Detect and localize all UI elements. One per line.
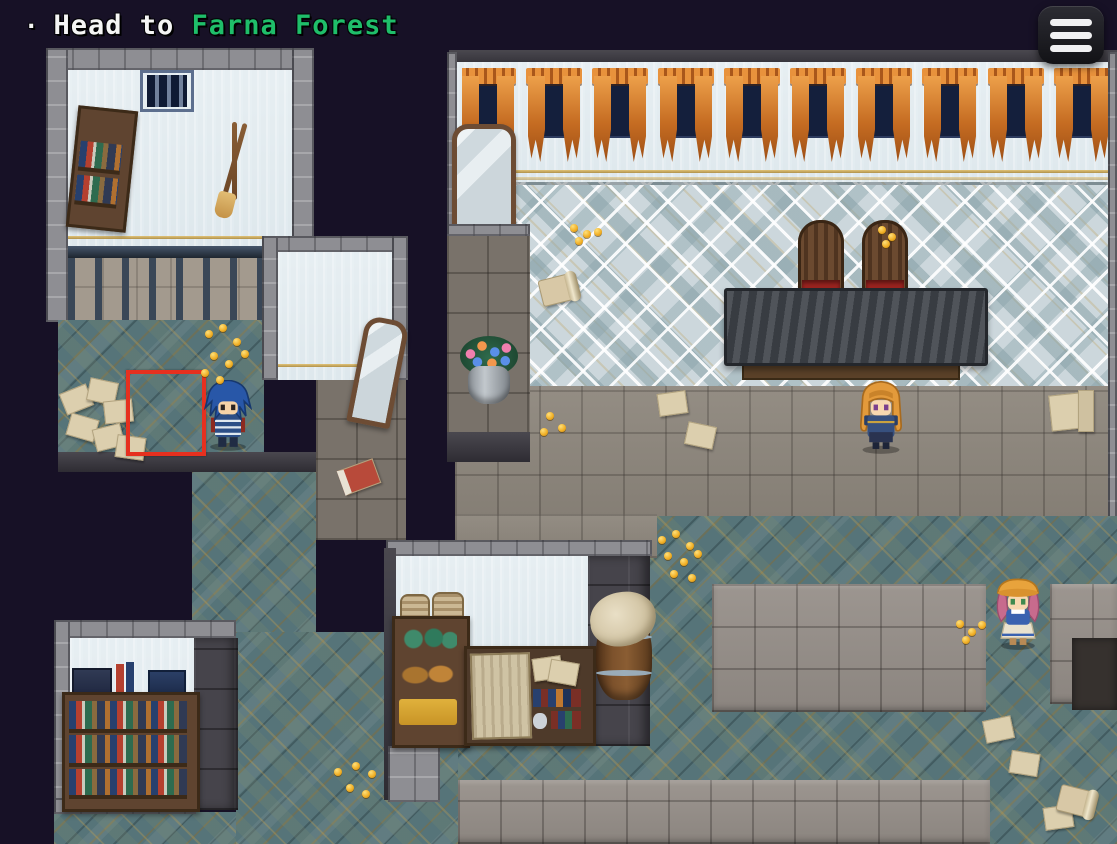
coin bbox=[241, 350, 249, 358]
quest-objective: ·Head to Farna Forest bbox=[24, 10, 399, 41]
curtain-left bbox=[990, 76, 1007, 162]
tile-cursor[interactable] bbox=[126, 370, 206, 456]
food-shelf bbox=[392, 616, 470, 748]
coin bbox=[680, 558, 688, 566]
curtained-window bbox=[924, 68, 976, 168]
quest-target: Farna Forest bbox=[192, 10, 399, 41]
jail-wall-top bbox=[46, 48, 314, 70]
flower-corridor-floor[interactable] bbox=[447, 236, 530, 434]
mid-wall-top bbox=[262, 236, 408, 252]
hall-wall-trim2 bbox=[455, 177, 1117, 180]
coin bbox=[346, 784, 354, 792]
npc-knight-sprite[interactable] bbox=[852, 380, 910, 454]
corridor-bottom-wall bbox=[447, 432, 530, 462]
shop-counter bbox=[464, 646, 596, 746]
curtained-window bbox=[990, 68, 1042, 168]
hamburger-menu-button[interactable] bbox=[1038, 6, 1104, 64]
tall-mirror bbox=[452, 124, 516, 234]
teal-floor-southwest[interactable] bbox=[54, 812, 236, 844]
corridor-ledge bbox=[447, 224, 530, 236]
coin bbox=[558, 424, 566, 432]
coin bbox=[962, 636, 970, 644]
curtain-left bbox=[528, 76, 545, 162]
coin bbox=[233, 338, 241, 346]
hall-right-wall bbox=[1108, 52, 1117, 526]
jail-bookshelf bbox=[66, 105, 138, 233]
curtained-window bbox=[1056, 68, 1108, 168]
curtained-window bbox=[594, 68, 646, 168]
jail-wall-trim bbox=[68, 236, 292, 239]
coin bbox=[694, 550, 702, 558]
hall-wall-trim bbox=[455, 170, 1117, 173]
jail-wall-left bbox=[46, 48, 68, 322]
coin bbox=[216, 376, 224, 384]
coin bbox=[225, 360, 233, 368]
curtain-right bbox=[1091, 76, 1108, 162]
coin bbox=[540, 428, 548, 436]
curtain-left bbox=[1056, 76, 1073, 162]
coin bbox=[878, 226, 886, 234]
npc-villager-sprite[interactable] bbox=[990, 576, 1046, 650]
curtain-right bbox=[827, 76, 844, 162]
curtain-left bbox=[792, 76, 809, 162]
curtain-right bbox=[1025, 76, 1042, 162]
shop-wall-top bbox=[386, 540, 652, 556]
game-viewport: ·Head to Farna Forest bbox=[0, 0, 1117, 844]
curtain-right bbox=[959, 76, 976, 162]
curtain-left bbox=[594, 76, 611, 162]
coin bbox=[882, 240, 890, 248]
coin bbox=[956, 620, 964, 628]
stone-table bbox=[724, 288, 988, 366]
coin bbox=[672, 530, 680, 538]
curtain-right bbox=[893, 76, 910, 162]
hall-stone-plaza[interactable] bbox=[455, 386, 1117, 518]
coin bbox=[205, 330, 213, 338]
curtained-window bbox=[858, 68, 910, 168]
coin bbox=[546, 412, 554, 420]
player-sprite bbox=[202, 380, 254, 452]
upright-book bbox=[116, 664, 124, 694]
coin bbox=[888, 233, 896, 241]
hamburger-menu-icon bbox=[1050, 19, 1092, 26]
coin bbox=[978, 621, 986, 629]
curtain-right bbox=[629, 76, 646, 162]
curtained-window bbox=[792, 68, 844, 168]
curtain-left bbox=[924, 76, 941, 162]
coin bbox=[688, 574, 696, 582]
railing-bars bbox=[68, 256, 292, 322]
curtained-window bbox=[660, 68, 712, 168]
throne-chair bbox=[798, 220, 844, 298]
coin bbox=[570, 224, 578, 232]
coin bbox=[219, 324, 227, 332]
quest-bullet: · bbox=[24, 12, 39, 40]
paper bbox=[1008, 750, 1040, 777]
upright-book bbox=[126, 662, 134, 694]
coin bbox=[686, 542, 694, 550]
curtain-left bbox=[858, 76, 875, 162]
barred-window bbox=[140, 70, 194, 112]
coin bbox=[352, 762, 360, 770]
paper bbox=[657, 390, 689, 417]
shop-left-base bbox=[388, 746, 440, 802]
library-wall-top bbox=[54, 620, 236, 638]
coin bbox=[334, 768, 342, 776]
coin bbox=[658, 536, 666, 544]
curtain-left bbox=[660, 76, 677, 162]
coin bbox=[362, 790, 370, 798]
curtain-left bbox=[726, 76, 743, 162]
coin bbox=[968, 628, 976, 636]
library-pillar bbox=[194, 638, 238, 810]
coin bbox=[583, 230, 591, 238]
coin bbox=[670, 570, 678, 578]
coin bbox=[664, 552, 672, 560]
curtain-right bbox=[761, 76, 778, 162]
coin bbox=[201, 369, 209, 377]
paper bbox=[1078, 390, 1094, 432]
stone-block-area[interactable] bbox=[712, 584, 986, 712]
library-bookshelf bbox=[62, 692, 200, 812]
mid-wall-left bbox=[262, 236, 278, 380]
curtained-window bbox=[528, 68, 580, 168]
flower-pot bbox=[468, 366, 510, 404]
railing-top bbox=[68, 246, 292, 258]
quest-text: Head to bbox=[53, 10, 174, 41]
dark-floor-patch bbox=[1072, 638, 1117, 710]
coin bbox=[575, 237, 583, 245]
teal-corridor[interactable] bbox=[192, 452, 316, 638]
curtained-window bbox=[726, 68, 778, 168]
coin bbox=[210, 352, 218, 360]
curtain-right bbox=[563, 76, 580, 162]
window-row bbox=[462, 68, 1117, 168]
coin bbox=[368, 770, 376, 778]
curtain-right bbox=[695, 76, 712, 162]
coin bbox=[594, 228, 602, 236]
